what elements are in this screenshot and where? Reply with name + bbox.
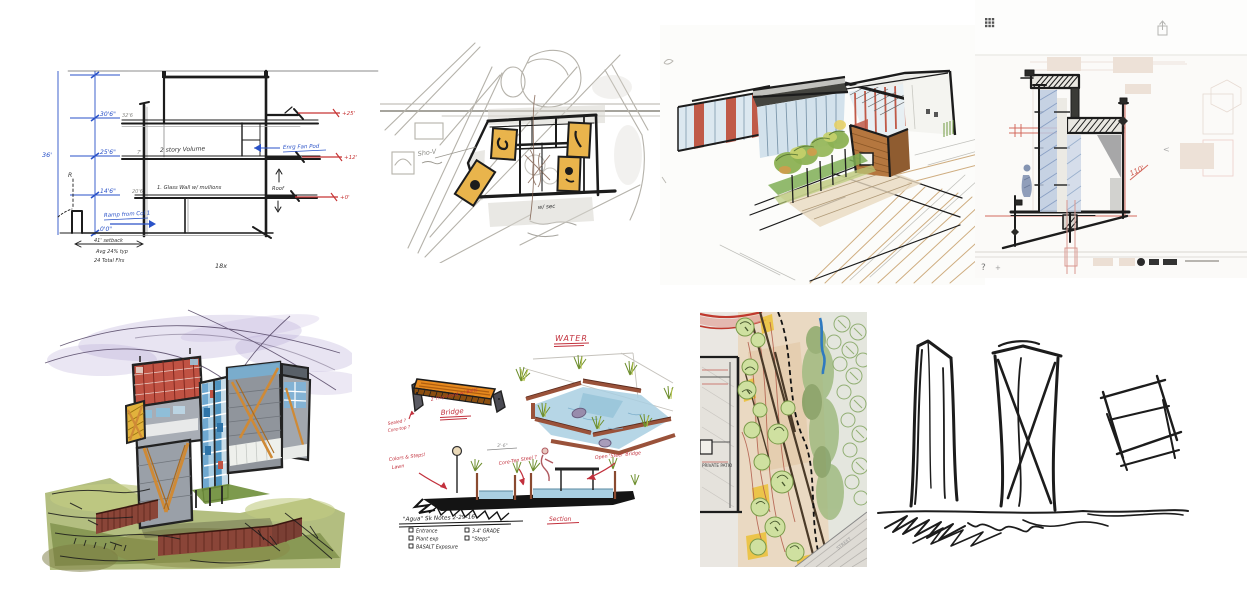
sketch-aerial-perspective-courtyard[interactable] (660, 25, 985, 285)
sketch-site-plan-yellow-buildings[interactable]: Sho-V w/ sec (380, 35, 670, 263)
wall-mark-1: 32'6 (122, 113, 133, 119)
section-sketch-drawing: 36' 30'6" 25'6" 14'6" 0'0" (40, 5, 380, 270)
section-linework (58, 71, 378, 247)
red-level-labels: +25' +12' +0' (340, 111, 357, 201)
coreten-note: Core-Ten Steel ? (498, 454, 538, 467)
total-height-label: 36' (42, 151, 52, 159)
section-label: Section (549, 516, 571, 523)
zoom-plus-button[interactable]: + (995, 264, 1001, 272)
sketch-wall-section-app-screenshot[interactable]: 110' (975, 0, 1247, 278)
note-r-mark: R (68, 172, 72, 179)
tower-left (911, 341, 957, 506)
note-pod: Enrg Fan Pod (283, 144, 320, 151)
site-plan-sketch-drawing: Sho-V w/ sec (380, 35, 670, 263)
water-feature-sketch-drawing: WATER 2' Hvy (383, 323, 678, 551)
scale-note: 18x (215, 262, 227, 270)
tower-ink-drawing (873, 328, 1193, 556)
footer-dim: 41' setback (94, 238, 124, 244)
plan-diagram-squares (1101, 376, 1181, 470)
note-roof: Roof (272, 186, 285, 192)
lawn-note-2: Lawn (391, 463, 404, 471)
sketch-gallery: 36' 30'6" 25'6" 14'6" 0'0" (0, 0, 1247, 599)
red-mark-3: +0' (340, 195, 350, 201)
red-mark-1: +25' (342, 111, 355, 117)
section-dim-note: 3'-6" (497, 443, 508, 449)
note-volume: 2 story Volume (160, 145, 206, 154)
footer-note1: Avg 24% typ (95, 249, 128, 255)
tower-middle (993, 341, 1061, 510)
level-label-2: 25'6" (100, 149, 116, 156)
sketch-building-section-dimensions[interactable]: 36' 30'6" 25'6" 14'6" 0'0" (40, 5, 380, 270)
footer-note2: 24 Total Flrs (94, 258, 125, 264)
ink-notes: 2 story Volume 1. Glass Wall w/ mullions… (68, 145, 285, 270)
bridge-label: Bridge (440, 407, 463, 417)
wall-mark-2: 7' (137, 150, 142, 156)
plan-heavy-outline (468, 115, 615, 197)
level-label-4: 0'0" (100, 226, 112, 233)
sketch-watercolor-building-perspective[interactable] (40, 298, 352, 596)
sketch-agua-water-feature-notes[interactable]: WATER 2' Hvy (383, 323, 678, 551)
building-plan: PRIVATE PATIO (700, 357, 742, 512)
color-wheel-icon[interactable] (1137, 258, 1145, 266)
sketch-landscape-site-plan[interactable]: PRIVATE PATIO (700, 312, 867, 567)
red-mark-2: +12' (344, 155, 357, 161)
agua-title: "Agua" Sk Notes 2-29-16 (403, 514, 476, 523)
grid-view-icon[interactable] (985, 18, 994, 27)
note-glass: 1. Glass Wall w/ mullions (157, 185, 222, 191)
help-button[interactable]: ? (981, 263, 986, 273)
label-sec: w/ sec (538, 204, 556, 211)
water-plan-view (516, 353, 675, 453)
level-label-3: 14'6" (100, 188, 116, 195)
lawn-note-1: Colors & Steps! (388, 452, 426, 463)
check-basalt: BASALT Exposure (416, 545, 458, 551)
ground-scribble (878, 510, 1188, 546)
pencil-marks: 32'6 7' 20'6 (122, 113, 143, 195)
check-grade: 3-4' GRADE (472, 529, 501, 535)
water-title: WATER (555, 334, 588, 343)
check-entrance: Entrance (416, 529, 438, 535)
perspective-sketch-drawing (660, 25, 985, 285)
notes-title-block: "Agua" Sk Notes 2-29-16 Entrance Plant e… (399, 514, 523, 550)
sketch-tower-concept-ink[interactable] (873, 328, 1193, 556)
check-steps: "Steps" (472, 537, 490, 543)
wall-mark-3: 20'6 (132, 189, 143, 195)
landscape-plan-drawing: PRIVATE PATIO (700, 312, 867, 567)
nav-back-arrow[interactable]: < (1163, 145, 1170, 154)
level-label-1: 30'6" (100, 111, 116, 118)
check-plant-exp: Plant exp (416, 537, 438, 543)
private-patio-label: PRIVATE PATIO (702, 463, 733, 468)
label-shov: Sho-V (417, 147, 437, 158)
app-screenshot-drawing: 110' (975, 0, 1247, 278)
watercolor-sketch-drawing (40, 298, 352, 596)
